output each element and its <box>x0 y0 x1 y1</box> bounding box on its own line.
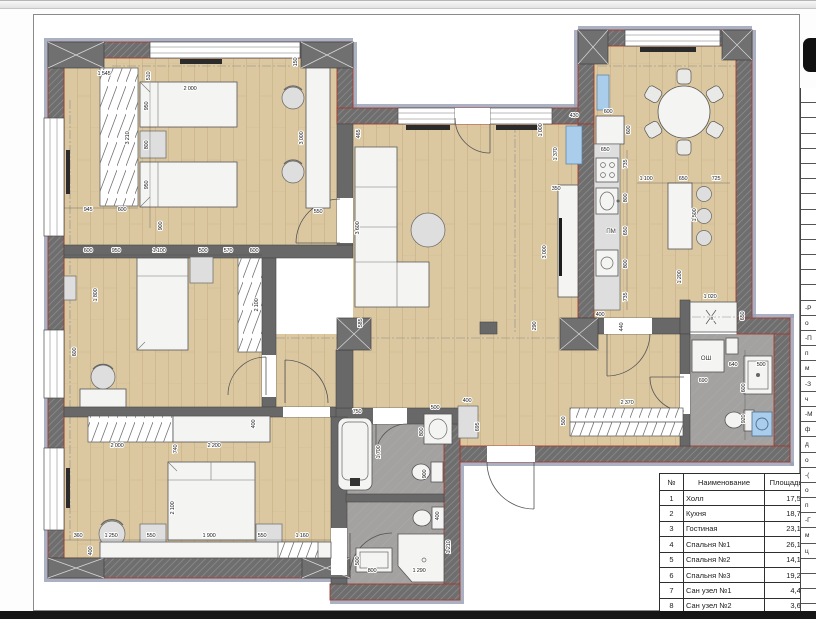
edge-table-row <box>801 285 816 300</box>
edge-table-row: -( <box>801 468 816 483</box>
dimension-label: 465 <box>356 130 362 139</box>
room-number: 6 <box>660 567 684 582</box>
dimension-label: 400 <box>435 512 441 521</box>
cabinet-bedroom2 <box>190 257 213 283</box>
window-top-bar <box>0 0 816 9</box>
oven <box>596 250 618 276</box>
room-number: 7 <box>660 583 684 598</box>
dimension-label: 735 <box>623 293 629 302</box>
dimension-label: 600 <box>72 348 78 357</box>
dimension-label: 2 000 <box>111 443 124 449</box>
edge-table-row <box>801 88 816 103</box>
kitchen-sink <box>596 188 620 214</box>
edge-table-row: -П <box>801 331 816 346</box>
edge-table-row: ц <box>801 544 816 559</box>
fridge <box>596 116 624 144</box>
bar-counter <box>668 183 692 249</box>
dimension-label: 1 545 <box>98 71 111 77</box>
dimension-label: 570 <box>224 248 233 254</box>
edge-table-row: о <box>801 483 816 498</box>
plan-label: ОШ <box>701 355 712 362</box>
table-row: 5Спальня №214,15 <box>660 552 813 567</box>
coat-rack <box>570 408 683 436</box>
edge-table-row: -Р <box>801 301 816 316</box>
legend-header-name: Наименование <box>684 474 765 491</box>
room-legend-table: № Наименование Площадь 1Холл17,582Кухня1… <box>659 473 813 614</box>
dimension-label: 950 <box>144 102 150 111</box>
dimension-label: 500 <box>561 417 567 426</box>
table-row: 4Спальня №126,19 <box>660 537 813 552</box>
glass-cabinet <box>566 126 582 164</box>
edge-table-row: -Г <box>801 513 816 528</box>
dimension-label: 800 <box>144 141 150 150</box>
edge-table-row <box>801 118 816 133</box>
edge-table-row <box>801 179 816 194</box>
dimension-label: 350 <box>552 186 561 192</box>
dimension-label: 585 <box>358 319 364 328</box>
dimension-label: 1 210 <box>446 540 452 553</box>
desk-chair <box>282 86 304 109</box>
desk-bedroom2 <box>80 389 126 407</box>
dimension-label: 650 <box>740 312 746 321</box>
dimension-label: 500 <box>355 557 361 566</box>
dimension-label: 3 210 <box>125 131 131 144</box>
window-living-1 <box>398 108 455 124</box>
dimension-label: 3 600 <box>355 221 361 234</box>
window-bedroom1-left <box>44 118 64 236</box>
window-bedroom2-left <box>44 330 64 398</box>
table-row: 2Кухня18,74 <box>660 506 813 521</box>
dimension-label: 600 <box>626 126 632 135</box>
dimension-label: 1 160 <box>296 533 309 539</box>
table-row: 3Гостиная23,10 <box>660 521 813 536</box>
window-bedroom3-left <box>44 448 64 530</box>
room-number: 1 <box>660 491 684 506</box>
edge-table-row: м <box>801 361 816 376</box>
dimension-label: 1 100 <box>153 248 166 254</box>
edge-table-strip: -Ро-Ппм-Зч-Мфдо-(оп-Гмц <box>800 88 816 612</box>
dimension-label: 2 000 <box>184 86 197 92</box>
dimension-label: 290 <box>532 322 538 331</box>
dimension-label: 1 900 <box>203 533 216 539</box>
dimension-label: 800 <box>368 568 377 574</box>
room-number: 2 <box>660 506 684 521</box>
dimension-label: 600 <box>741 384 747 393</box>
room-name: Гостиная <box>684 521 765 536</box>
dimension-label: 800 <box>623 260 629 269</box>
edge-table-row: м <box>801 528 816 543</box>
room-number: 4 <box>660 537 684 552</box>
dimension-label: 1 290 <box>413 568 426 574</box>
edge-table-row: -З <box>801 377 816 392</box>
dimension-label: 550 <box>147 533 156 539</box>
radiator <box>66 150 70 194</box>
coffee-table <box>411 213 445 247</box>
entry-cabinet <box>458 406 478 438</box>
dimension-label: 1 250 <box>105 533 118 539</box>
desk-bedroom1 <box>306 68 330 208</box>
dimension-label: 950 <box>144 181 150 190</box>
dimension-label: 400 <box>251 420 257 429</box>
dimension-label: 1 100 <box>640 176 653 182</box>
window-kitchen-top <box>625 30 720 46</box>
edge-table-row <box>801 589 816 604</box>
edge-table-row <box>801 210 816 225</box>
sink-bath1 <box>424 414 452 444</box>
radiator <box>640 47 696 52</box>
dimension-label: 945 <box>84 207 93 213</box>
room-name: Кухня <box>684 506 765 521</box>
bar-stools <box>697 187 712 246</box>
wardrobe-small <box>278 542 318 558</box>
dimension-label: 800 <box>419 428 425 437</box>
dimension-label: 400 <box>596 312 605 318</box>
room-table-body: 1Холл17,582Кухня18,743Гостиная23,104Спал… <box>660 491 813 614</box>
bed-single-2 <box>140 162 237 207</box>
washing-machine <box>752 412 772 436</box>
dimension-label: 550 <box>314 209 323 215</box>
dimension-label: 725 <box>712 176 721 182</box>
dimension-label: 640 <box>729 362 738 368</box>
dimension-label: 360 <box>74 533 83 539</box>
dimension-label: 650 <box>679 176 688 182</box>
dimension-label: 2 370 <box>621 400 634 406</box>
dimension-label: 150 <box>293 58 299 67</box>
table-row: 6Спальня №319,23 <box>660 567 813 582</box>
window-bottom-bar <box>0 611 816 619</box>
dimension-label: 1 020 <box>704 294 717 300</box>
room-name: Спальня №1 <box>684 537 765 552</box>
plan-label: ПМ <box>606 228 616 235</box>
room-number: 5 <box>660 552 684 567</box>
edge-table-row <box>801 270 816 285</box>
dimension-label: 500 <box>757 362 766 368</box>
radiator <box>496 125 540 130</box>
legend-header-num: № <box>660 474 684 491</box>
dimension-label: 650 <box>601 147 610 153</box>
edge-table-row <box>801 194 816 209</box>
dimension-label: 3 000 <box>542 245 548 258</box>
room-name: Спальня №3 <box>684 567 765 582</box>
wardrobe-bedroom3 <box>88 416 173 442</box>
room-name: Холл <box>684 491 765 506</box>
radiator <box>406 125 450 130</box>
dimension-label: 500 <box>431 405 440 411</box>
table-row: 7Сан узел №14,44 <box>660 583 813 598</box>
dimension-label: 400 <box>463 398 472 404</box>
dimension-label: 650 <box>623 227 629 236</box>
dimension-label: 600 <box>84 248 93 254</box>
dresser-bedroom2 <box>64 276 76 300</box>
dimension-label: 900 <box>158 222 164 231</box>
room-number: 3 <box>660 521 684 536</box>
screenshot-root: 1 5455102 0009508009509003 2109456001503… <box>0 0 816 619</box>
dimension-label: 920 <box>741 415 747 424</box>
edge-table-row <box>801 240 816 255</box>
window-bedroom1-top <box>150 42 300 58</box>
dimension-label: 600 <box>118 207 127 213</box>
dimension-label: 1 000 <box>538 123 544 136</box>
edge-table-row: ч <box>801 392 816 407</box>
edge-table-row: о <box>801 453 816 468</box>
dimension-label: 690 <box>699 378 708 384</box>
dimension-label: 900 <box>422 470 428 479</box>
dimension-label: 1 200 <box>677 270 683 283</box>
desk-chair <box>282 160 304 183</box>
dining-table <box>658 86 710 138</box>
boiler <box>726 338 738 354</box>
edge-table-row <box>801 134 816 149</box>
edge-table-row: о <box>801 316 816 331</box>
dimension-label: 1 700 <box>376 445 382 458</box>
edge-table-row: ф <box>801 422 816 437</box>
tv-unit <box>558 185 578 297</box>
room-name: Сан узел №1 <box>684 583 765 598</box>
dimension-label: 440 <box>619 323 625 332</box>
dimension-label: 1 500 <box>692 208 698 221</box>
dimension-label: 2 100 <box>254 298 260 311</box>
bed-double <box>168 462 255 540</box>
radiator <box>180 59 222 64</box>
door-entry <box>487 446 535 509</box>
dimension-label: 695 <box>475 423 481 432</box>
edge-table-row: п <box>801 498 816 513</box>
dimension-label: 600 <box>250 248 259 254</box>
edge-table-row <box>801 225 816 240</box>
dimension-label: 550 <box>258 533 267 539</box>
bed-bedroom2 <box>137 258 188 350</box>
edge-table-row <box>801 103 816 118</box>
window-living-2 <box>490 108 552 124</box>
room-name: Спальня №2 <box>684 552 765 567</box>
dimension-label: 735 <box>623 160 629 169</box>
dimension-label: 2 100 <box>170 501 176 514</box>
radiator <box>66 468 70 508</box>
bathtub <box>338 418 372 490</box>
edge-table-row <box>801 164 816 179</box>
dimension-label: 800 <box>623 194 629 203</box>
dimension-label: 500 <box>199 248 208 254</box>
edge-table-row: -М <box>801 407 816 422</box>
dimension-label: 400 <box>88 547 94 556</box>
legend-header-row: № Наименование Площадь <box>660 474 813 491</box>
dimension-label: 950 <box>112 248 121 254</box>
dimension-label: 2 200 <box>208 443 221 449</box>
dimension-label: 510 <box>146 72 152 81</box>
dimension-label: 740 <box>173 445 179 454</box>
table-row: 1Холл17,58 <box>660 491 813 506</box>
glass-cabinet <box>597 75 609 110</box>
edge-table-row: п <box>801 346 816 361</box>
dimension-label: 1 370 <box>553 147 559 160</box>
edge-table-row: д <box>801 437 816 452</box>
edge-logo-cutoff <box>803 38 816 72</box>
edge-table-row <box>801 149 816 164</box>
edge-table-row <box>801 255 816 270</box>
desk-chair <box>91 364 115 389</box>
dimension-label: 750 <box>353 409 362 415</box>
dimension-label: 600 <box>604 109 613 115</box>
edge-table-row <box>801 574 816 589</box>
edge-table-row <box>801 559 816 574</box>
dimension-label: 430 <box>570 113 579 119</box>
dimension-label: 1 800 <box>93 288 99 301</box>
stove <box>596 158 618 182</box>
wardrobe-bedroom1 <box>100 68 138 206</box>
dimension-label: 3 000 <box>299 131 305 144</box>
